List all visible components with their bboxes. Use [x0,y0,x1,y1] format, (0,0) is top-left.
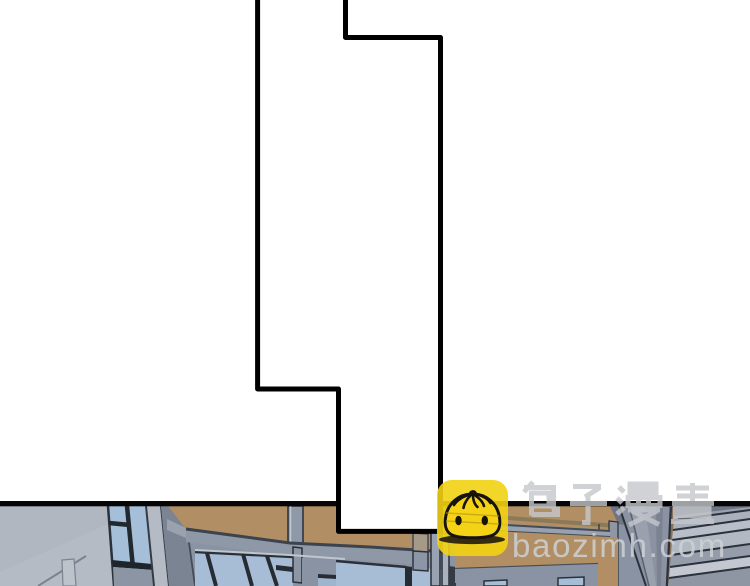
svg-text:baozimh.com: baozimh.com [512,527,727,564]
